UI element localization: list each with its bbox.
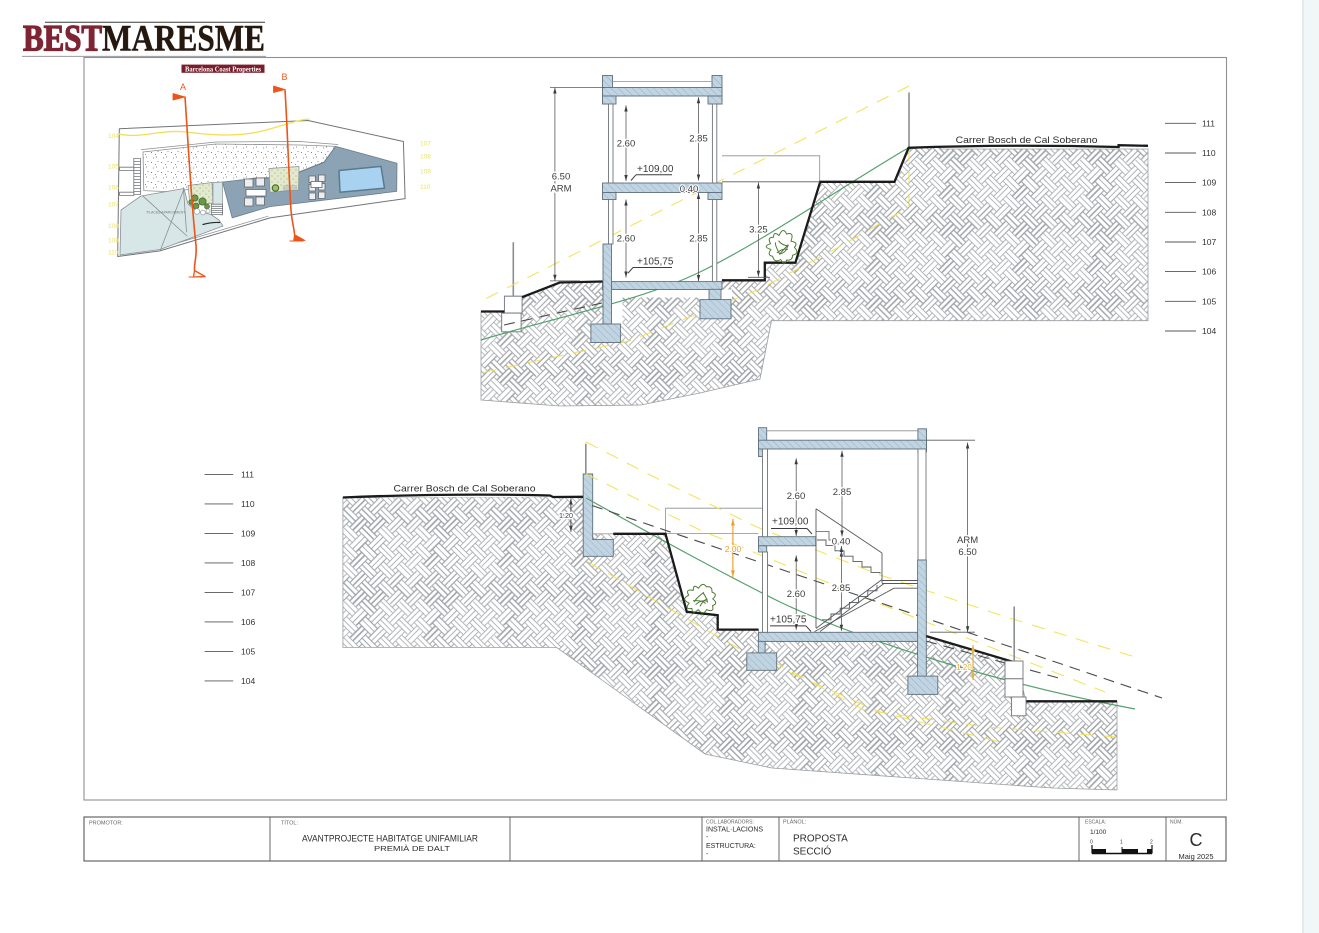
svg-text:6.50: 6.50 bbox=[958, 547, 977, 558]
svg-text:110: 110 bbox=[241, 499, 255, 509]
svg-text:2.60: 2.60 bbox=[617, 139, 636, 150]
svg-text:Carrer Bosch de Cal Soberano: Carrer Bosch de Cal Soberano bbox=[956, 135, 1098, 145]
svg-text:107: 107 bbox=[108, 202, 119, 209]
svg-text:105: 105 bbox=[241, 646, 255, 656]
svg-text:COL.LABORADORS:: COL.LABORADORS: bbox=[706, 820, 754, 826]
svg-text:111: 111 bbox=[1202, 118, 1215, 128]
svg-text:108: 108 bbox=[108, 223, 119, 230]
svg-text:PROMOTOR:: PROMOTOR: bbox=[89, 821, 123, 827]
svg-text:104: 104 bbox=[108, 133, 119, 140]
svg-text:0.40: 0.40 bbox=[680, 184, 699, 195]
svg-text:INSTAL·LACIONS: INSTAL·LACIONS bbox=[706, 827, 763, 834]
svg-text:2.60: 2.60 bbox=[617, 234, 636, 245]
svg-text:2.85: 2.85 bbox=[832, 583, 851, 594]
svg-text:2.60: 2.60 bbox=[787, 589, 806, 600]
svg-text:A: A bbox=[180, 82, 186, 92]
svg-text:1/100: 1/100 bbox=[1090, 829, 1107, 836]
svg-text:108: 108 bbox=[420, 154, 431, 161]
svg-text:106: 106 bbox=[108, 185, 119, 192]
svg-text:2.60: 2.60 bbox=[787, 491, 806, 502]
svg-text:110: 110 bbox=[108, 250, 119, 257]
svg-text:107: 107 bbox=[1202, 237, 1216, 247]
svg-text:+109,00: +109,00 bbox=[772, 517, 809, 528]
svg-text:105: 105 bbox=[108, 164, 119, 171]
svg-text:104: 104 bbox=[241, 676, 255, 686]
svg-text:PROPOSTA: PROPOSTA bbox=[793, 834, 848, 845]
svg-text:Maig 2025: Maig 2025 bbox=[1178, 852, 1213, 861]
svg-text:ARM: ARM bbox=[957, 535, 978, 546]
svg-text:108: 108 bbox=[241, 558, 255, 568]
svg-text:2.85: 2.85 bbox=[833, 487, 852, 498]
svg-text:PREMIÀ DE DALT: PREMIÀ DE DALT bbox=[374, 844, 451, 853]
svg-text:AVANTPROJECTE HABITATGE UNIFAM: AVANTPROJECTE HABITATGE UNIFAMILIAR bbox=[302, 834, 478, 844]
svg-text:109: 109 bbox=[108, 238, 119, 245]
svg-text:Carrer Bosch de Cal Soberano: Carrer Bosch de Cal Soberano bbox=[394, 484, 536, 494]
svg-text:2: 2 bbox=[1150, 840, 1153, 846]
svg-text:Barcelona Coast Properties: Barcelona Coast Properties bbox=[185, 64, 261, 73]
svg-text:SECCIÓ: SECCIÓ bbox=[793, 845, 832, 858]
svg-text:106: 106 bbox=[1202, 267, 1216, 277]
svg-text:+105,75: +105,75 bbox=[637, 257, 674, 268]
svg-text:BESTMARESME: BESTMARESME bbox=[23, 19, 265, 60]
svg-text:107: 107 bbox=[241, 587, 255, 597]
svg-text:109: 109 bbox=[420, 169, 431, 176]
svg-text:108: 108 bbox=[1202, 207, 1216, 217]
svg-text:2.85: 2.85 bbox=[689, 234, 708, 245]
svg-text:109: 109 bbox=[1202, 178, 1216, 188]
svg-text:C: C bbox=[1190, 830, 1203, 850]
svg-text:3.25: 3.25 bbox=[749, 225, 768, 236]
svg-text:PLÀNOL:: PLÀNOL: bbox=[783, 819, 807, 826]
svg-text:+105,75: +105,75 bbox=[770, 615, 807, 626]
svg-text:B: B bbox=[282, 72, 288, 82]
svg-text:106: 106 bbox=[241, 617, 255, 627]
svg-text:0: 0 bbox=[1090, 840, 1093, 846]
svg-text:104: 104 bbox=[1202, 326, 1216, 336]
svg-text:1.20: 1.20 bbox=[956, 663, 972, 672]
svg-text:111: 111 bbox=[241, 469, 254, 479]
svg-text:TÍTOL:: TÍTOL: bbox=[281, 820, 298, 827]
svg-text:110: 110 bbox=[1202, 148, 1216, 158]
svg-text:ESTRUCTURA:: ESTRUCTURA: bbox=[706, 843, 756, 850]
svg-text:107: 107 bbox=[420, 141, 431, 148]
svg-text:2.00: 2.00 bbox=[725, 544, 742, 554]
svg-text:PLACES APARCAMENT: PLACES APARCAMENT bbox=[147, 211, 187, 215]
svg-text:105: 105 bbox=[1202, 296, 1216, 306]
svg-text:110: 110 bbox=[420, 184, 431, 191]
svg-text:ARM: ARM bbox=[550, 184, 571, 195]
svg-text:2.85: 2.85 bbox=[689, 134, 708, 145]
svg-text:+109,00: +109,00 bbox=[637, 164, 674, 175]
svg-text:ESCALA:: ESCALA: bbox=[1085, 820, 1106, 826]
svg-text:6.50: 6.50 bbox=[552, 172, 571, 183]
svg-text:NÚM.: NÚM. bbox=[1170, 819, 1183, 826]
svg-text:1: 1 bbox=[1120, 840, 1123, 846]
svg-text:109: 109 bbox=[241, 528, 255, 538]
svg-text:0.40: 0.40 bbox=[832, 537, 851, 548]
svg-text:1.20: 1.20 bbox=[559, 511, 573, 520]
